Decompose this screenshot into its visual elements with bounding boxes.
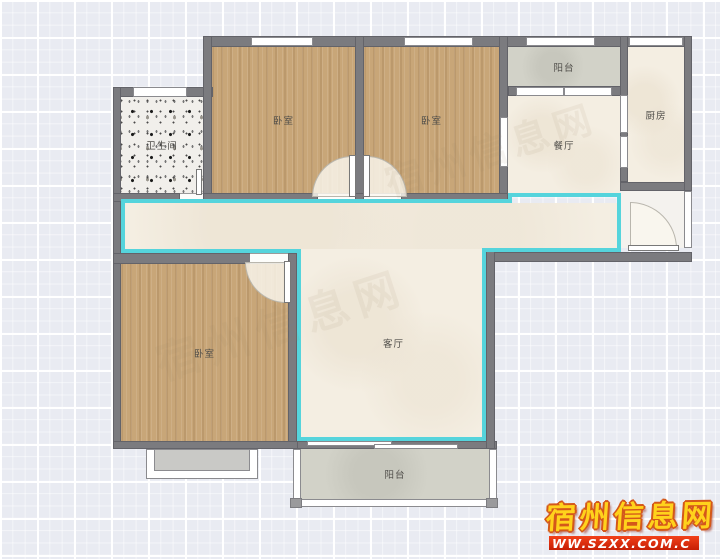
bay-window-slab — [154, 449, 250, 471]
room-dining: 餐厅 — [508, 96, 620, 193]
room-label-kitchen: 厨房 — [645, 108, 666, 122]
door-leaf-bedroom2 — [363, 155, 370, 197]
room-label-living: 客厅 — [383, 336, 404, 350]
kitchen-sliding-door-a — [620, 95, 628, 133]
zone-line-bedroom3-right — [297, 253, 301, 441]
window-kitchen-top — [629, 37, 683, 46]
zone-line-hall-bottom — [121, 249, 301, 253]
kitchen-sliding-door-b — [620, 136, 628, 168]
window-bedroom2-top — [404, 37, 473, 46]
door-leaf-entry — [628, 245, 679, 251]
room-label-bedroom-top-left: 卧室 — [273, 113, 294, 127]
zone-line-jog — [508, 193, 512, 203]
wall-left-exterior — [113, 87, 121, 449]
room-label-bedroom-top-right: 卧室 — [421, 113, 442, 127]
zone-line-dining-bottom — [508, 193, 618, 197]
zone-line-living-right — [482, 252, 486, 441]
window-balcony-dining — [516, 87, 612, 96]
room-label-dining: 餐厅 — [553, 138, 574, 152]
balcony-rail-bottom — [293, 499, 497, 507]
room-balcony-top: 阳台 — [508, 47, 620, 86]
wall-bedroom1-left — [203, 36, 212, 202]
room-balcony-bottom: 阳台 — [301, 449, 489, 499]
room-kitchen: 厨房 — [628, 47, 684, 182]
room-living: 客厅 — [301, 249, 486, 437]
zone-line-step-top — [482, 248, 621, 252]
balcony-post-left — [290, 498, 302, 508]
wall-kitchen-right-exterior — [684, 36, 692, 191]
site-url-banner: WW.SZXX.COM.C — [549, 536, 699, 550]
window-bedroom2-dining — [500, 117, 508, 167]
window-bathroom-top — [133, 87, 187, 97]
hallway-floor — [121, 203, 618, 249]
door-leaf-bedroom3 — [284, 261, 291, 303]
wall-bedroom3-bottom — [113, 441, 305, 449]
living-balcony-slider-b — [374, 444, 458, 449]
room-label-balcony-bottom: 阳台 — [384, 467, 405, 481]
wall-kitchen-bottom — [620, 182, 692, 191]
floor-plan-canvas: 卫生间 卧室 卧室 阳台 餐厅 厨房 客厅 卧室 阳台 — [0, 0, 720, 559]
door-leaf-bedroom1 — [349, 155, 356, 197]
zone-line-entry-right — [617, 193, 621, 250]
entry-door-threshold — [684, 191, 692, 248]
room-label-bedroom-bottom-left: 卧室 — [194, 346, 215, 360]
zone-line-living-bottom — [301, 437, 486, 441]
door-leaf-bathroom — [196, 169, 202, 195]
balcony-post-right — [486, 498, 498, 508]
zone-line-hall-top — [121, 199, 512, 203]
window-bedroom1-top — [251, 37, 313, 46]
wall-living-right — [486, 250, 495, 449]
window-balcony-top — [526, 37, 595, 46]
site-watermark: 宿州信息网 — [544, 491, 717, 538]
room-label-balcony-top: 阳台 — [553, 60, 574, 74]
wall-entry-bottom-step — [486, 252, 692, 262]
room-label-bathroom: 卫生间 — [146, 138, 178, 152]
room-bathroom: 卫生间 — [121, 97, 203, 193]
zone-line-hall-left — [121, 199, 125, 253]
